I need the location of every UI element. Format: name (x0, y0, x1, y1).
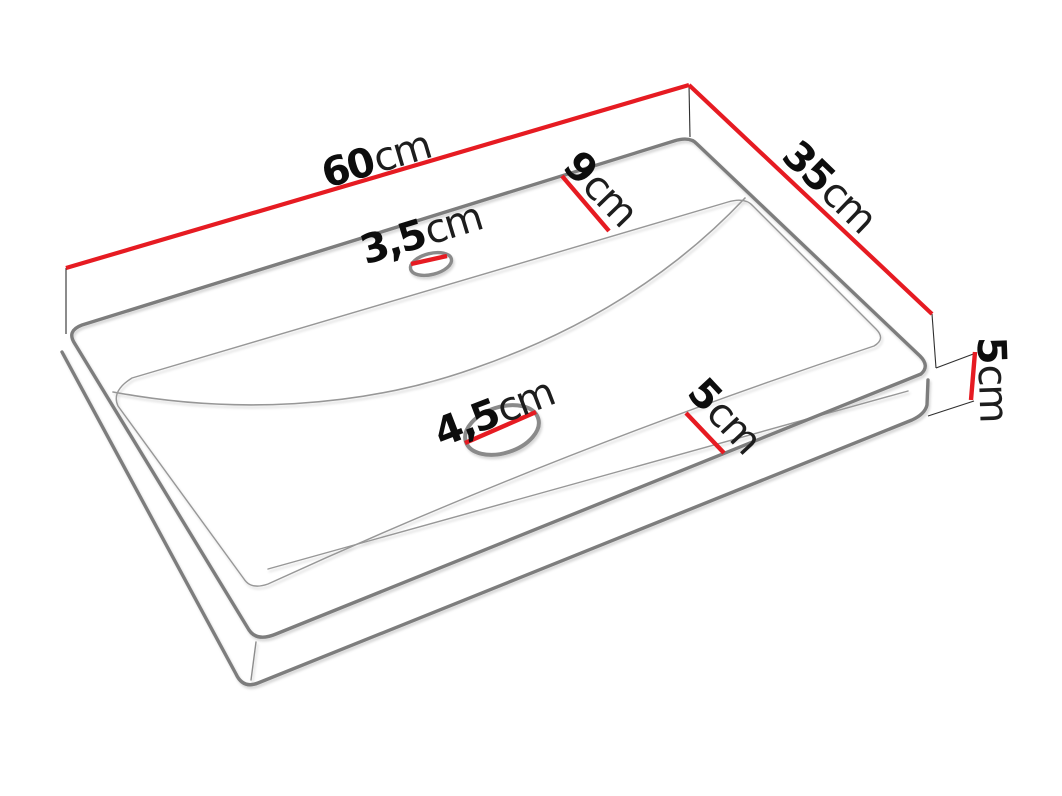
washbasin-dimension-diagram: 60cm 35cm 9cm 3,5cm 4,5cm 5cm 5cm (0, 0, 1062, 796)
dim-width-label: 60cm (316, 122, 435, 198)
dim-height-value: 5 (968, 336, 1015, 364)
dim-height-label: 5cm (968, 336, 1017, 422)
front-left-corner-seam (251, 642, 256, 680)
dim-height-unit: cm (969, 364, 1017, 423)
dim-width-unit: cm (368, 122, 436, 182)
extension-line-apex (689, 85, 690, 137)
dim-depth-label: 35cm (773, 132, 885, 242)
extension-line-height-bottom (928, 401, 974, 416)
dim-back-ledge-label: 9cm (554, 143, 646, 236)
extension-line-right-corner (932, 314, 936, 368)
dim-front-ledge-label: 5cm (678, 369, 769, 462)
diagram-canvas: 60cm 35cm 9cm 3,5cm 4,5cm 5cm 5cm (0, 0, 1062, 796)
